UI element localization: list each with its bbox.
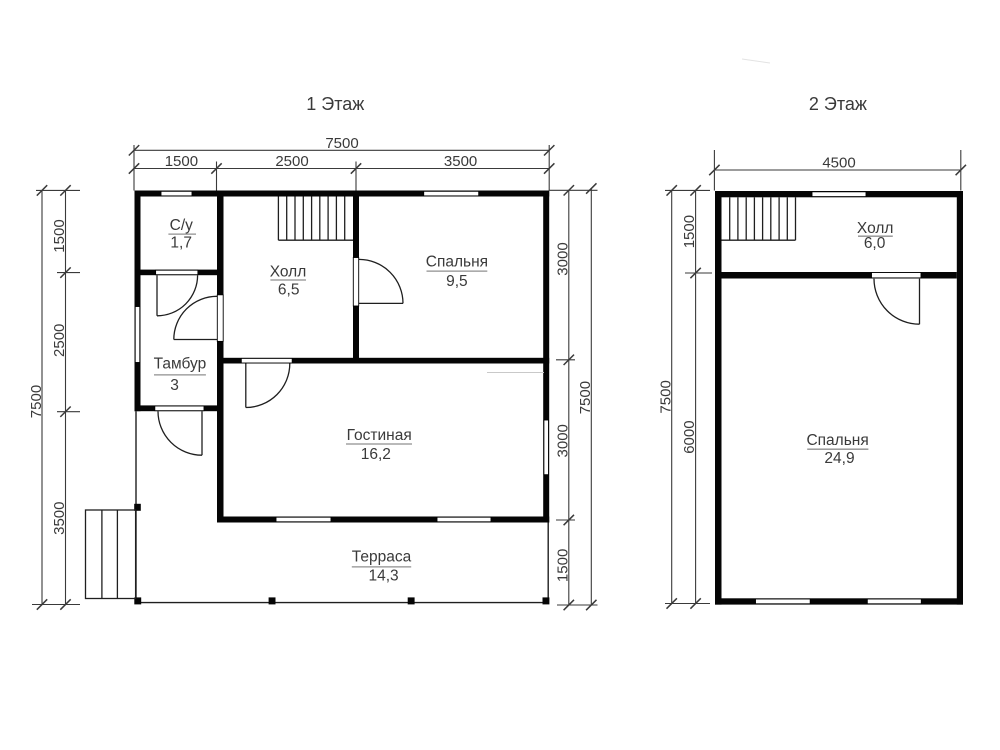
- svg-text:С/у: С/у: [170, 217, 194, 234]
- svg-text:Тамбур: Тамбур: [154, 355, 207, 372]
- svg-text:4500: 4500: [822, 155, 855, 172]
- svg-text:1 Этаж: 1 Этаж: [306, 94, 364, 114]
- svg-text:2 Этаж: 2 Этаж: [809, 94, 867, 114]
- svg-text:Спальня: Спальня: [426, 254, 488, 271]
- svg-text:1,7: 1,7: [170, 235, 192, 252]
- svg-text:1500: 1500: [51, 219, 68, 252]
- svg-text:1500: 1500: [555, 549, 572, 582]
- svg-text:6,0: 6,0: [864, 235, 886, 252]
- svg-text:6000: 6000: [681, 420, 698, 453]
- svg-text:16,2: 16,2: [361, 446, 391, 463]
- svg-text:1500: 1500: [681, 215, 698, 248]
- svg-text:Холл: Холл: [270, 263, 307, 280]
- svg-text:3000: 3000: [555, 424, 572, 457]
- svg-text:7500: 7500: [325, 135, 358, 152]
- svg-text:3000: 3000: [555, 242, 572, 275]
- svg-text:Спальня: Спальня: [806, 432, 868, 449]
- svg-text:7500: 7500: [658, 380, 675, 413]
- svg-text:9,5: 9,5: [446, 273, 468, 290]
- svg-text:2500: 2500: [51, 324, 68, 357]
- svg-text:2500: 2500: [275, 153, 308, 170]
- svg-text:3500: 3500: [444, 153, 477, 170]
- svg-text:Терраса: Терраса: [352, 549, 412, 566]
- svg-text:Гостиная: Гостиная: [347, 427, 412, 444]
- svg-text:14,3: 14,3: [369, 567, 399, 584]
- svg-text:3: 3: [170, 377, 179, 394]
- svg-text:7500: 7500: [577, 381, 594, 414]
- svg-text:1500: 1500: [165, 153, 198, 170]
- svg-text:24,9: 24,9: [824, 450, 854, 467]
- svg-text:6,5: 6,5: [278, 282, 300, 299]
- svg-text:7500: 7500: [28, 385, 45, 418]
- svg-text:3500: 3500: [51, 502, 68, 535]
